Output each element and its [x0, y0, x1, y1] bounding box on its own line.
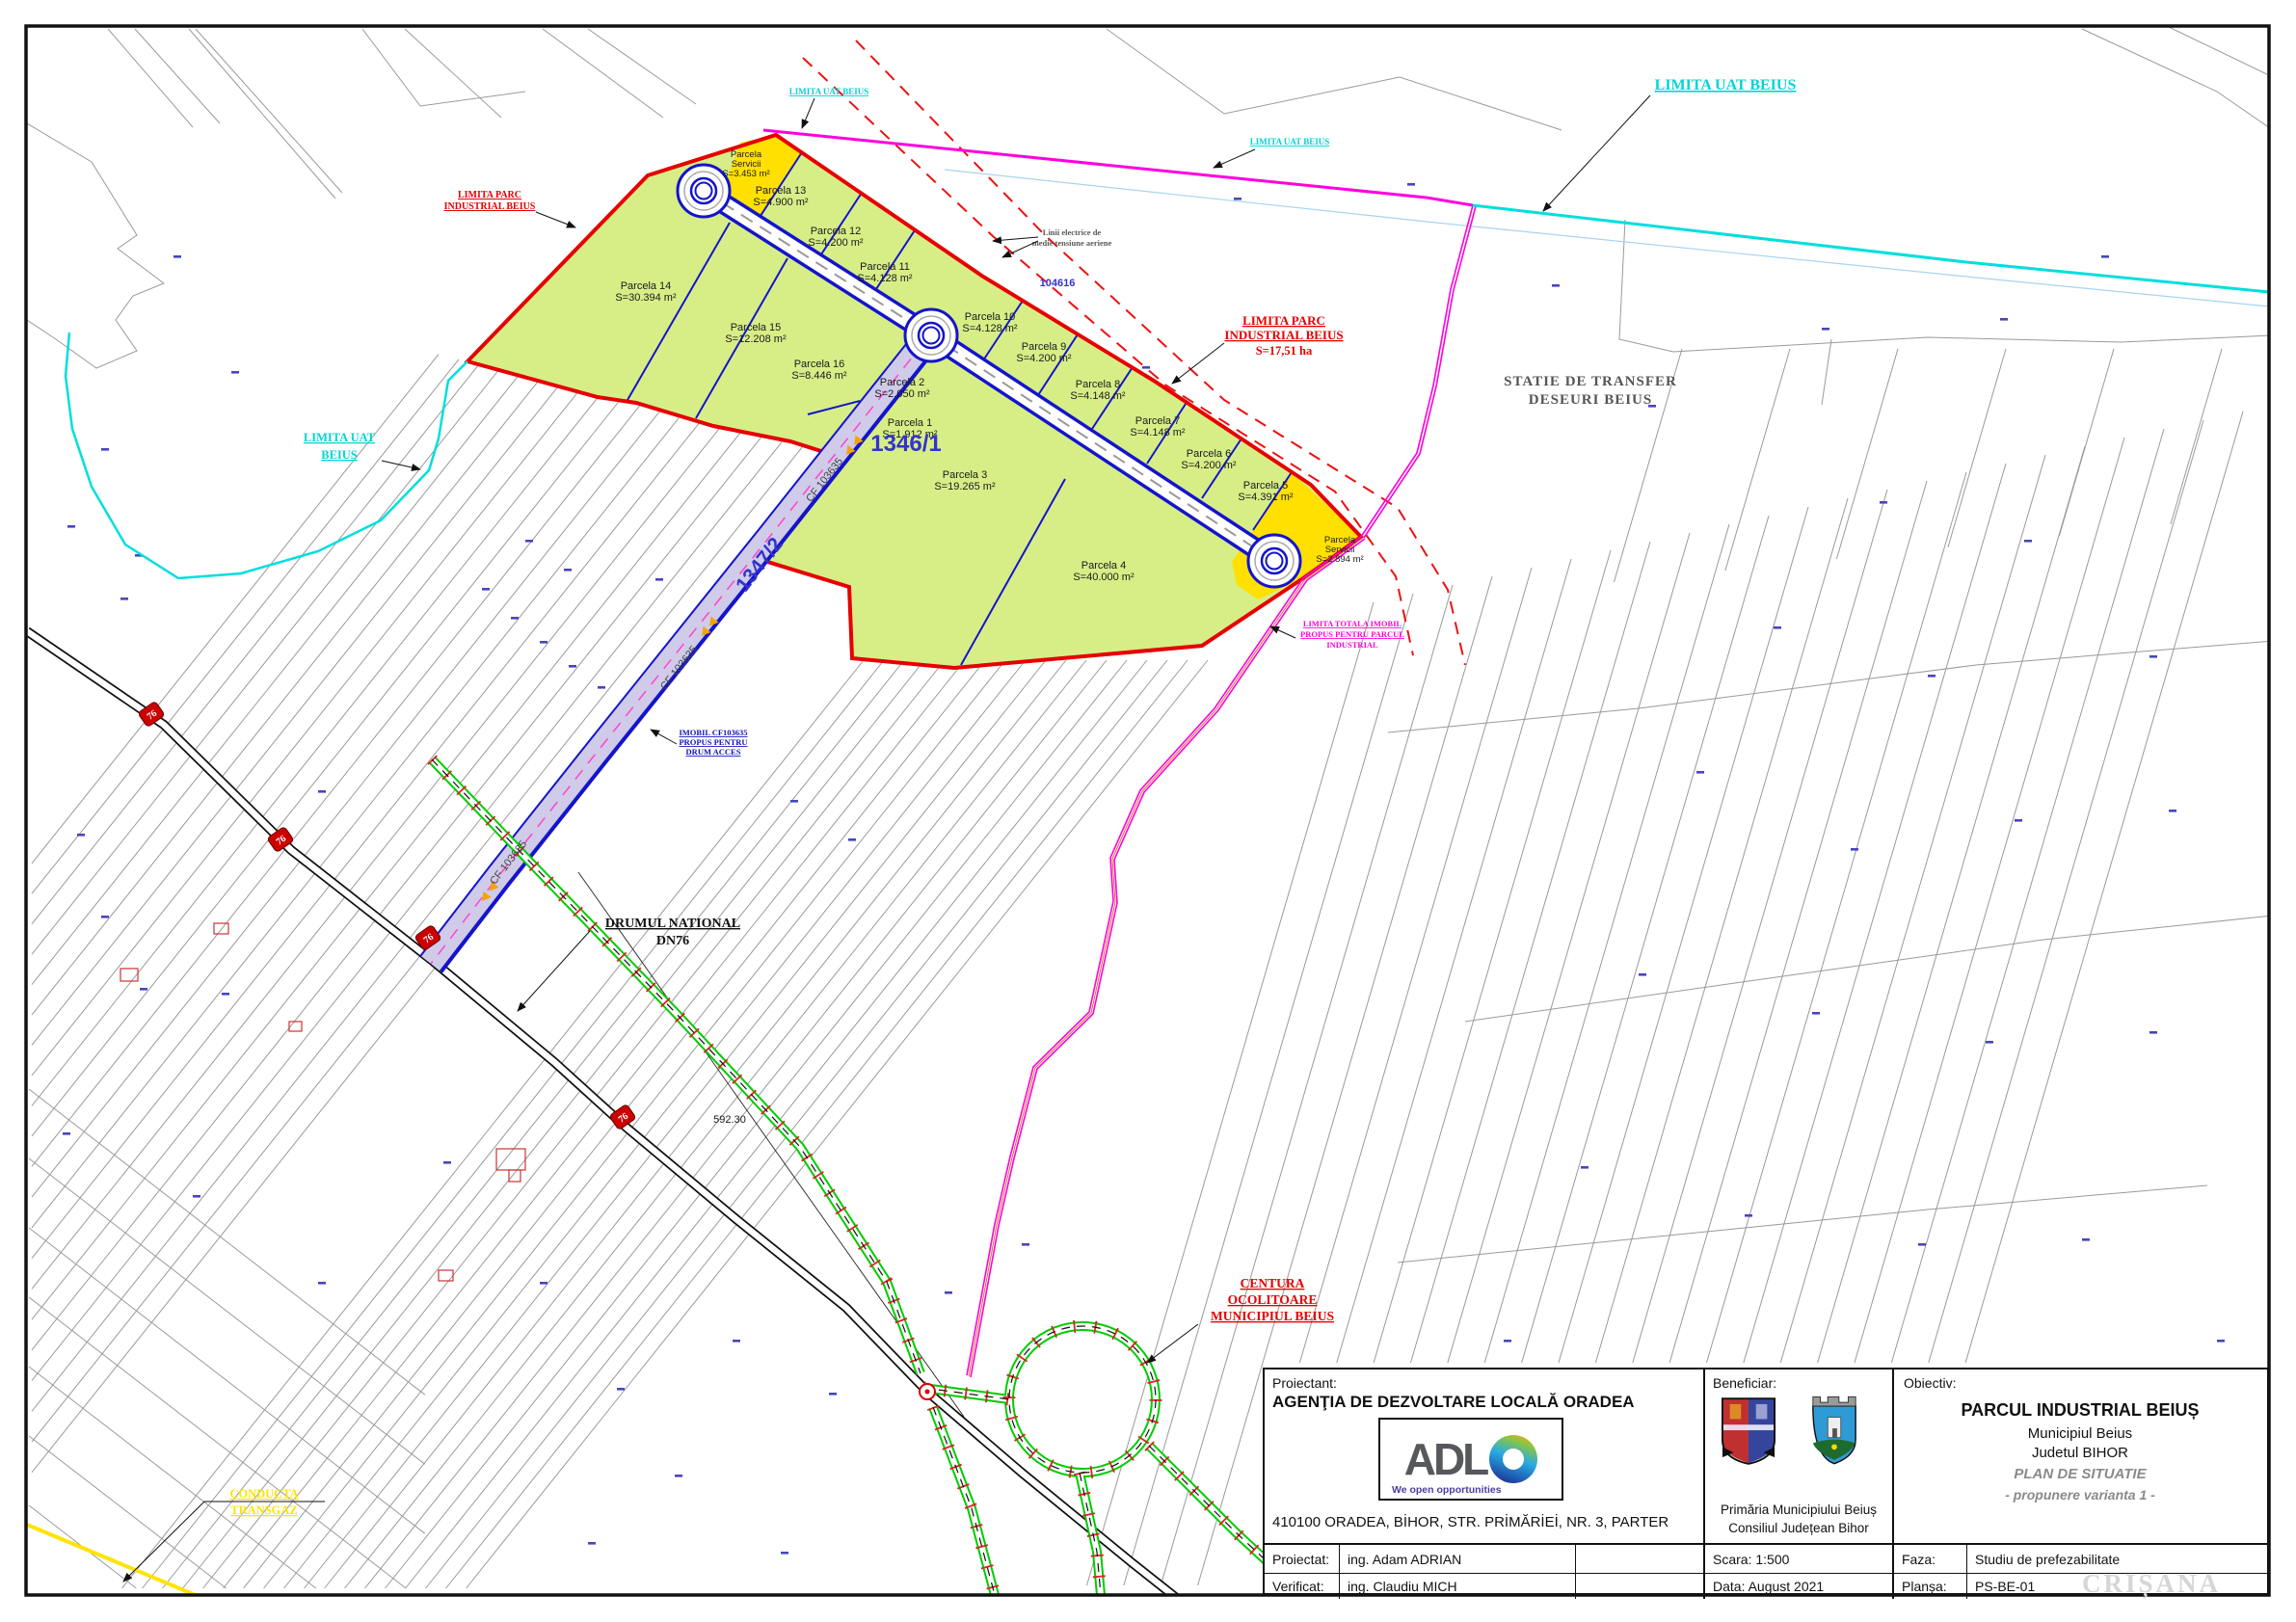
svg-text:S=2.894 m²: S=2.894 m² — [1316, 554, 1363, 565]
parcel-label: Parcela 3 — [943, 469, 987, 481]
data-value: Data: August 2021 — [1703, 1574, 1892, 1599]
svg-text:S=4.200 m²: S=4.200 m² — [808, 237, 864, 249]
imobil-label: IMOBIL CF103635 — [679, 728, 747, 737]
svg-text:S=8.446 m²: S=8.446 m² — [791, 370, 847, 382]
linii-electrice-label: Linii electrice de — [1043, 227, 1102, 237]
svg-text:S=4.900 m²: S=4.900 m² — [753, 197, 809, 208]
svg-text:S=40.000 m²: S=40.000 m² — [1073, 572, 1135, 583]
conducta-label: CONDUCTA — [229, 1487, 298, 1501]
uat-label-small: LIMITA UAT BEIUS — [789, 87, 869, 96]
plan-de-situatie-page: 76 76 76 76 Parcela Servicii S=3.453 m² … — [0, 0, 2296, 1622]
obiectiv-municipiu: Municipiul Beius — [1894, 1425, 2266, 1442]
uat-boundary-magenta — [763, 130, 1473, 205]
statie-label: STATIE DE TRANSFER — [1504, 374, 1677, 389]
dimension-value: 592.30 — [713, 1114, 746, 1126]
limita-totala-label: LIMITA TOTALA IMOBIL — [1303, 619, 1402, 628]
adlo-globe-icon — [1489, 1435, 1537, 1483]
parcel-label: Parcela 14 — [621, 280, 672, 292]
parcel-label: Parcela 6 — [1187, 448, 1231, 460]
parcel-label: Parcela 8 — [1076, 379, 1120, 390]
obiectiv-title: PARCUL INDUSTRIAL BEIUȘ — [1894, 1400, 2266, 1421]
parcel-label: Parcela 5 — [1243, 480, 1288, 492]
parcel-label: Parcela 9 — [1022, 341, 1066, 353]
svg-text:S=12.208 m²: S=12.208 m² — [725, 333, 787, 345]
svg-text:MUNICIPIUL BEIUS: MUNICIPIUL BEIUS — [1211, 1309, 1334, 1323]
svg-text:S=4.391 m²: S=4.391 m² — [1238, 492, 1294, 503]
svg-text:S=30.394 m²: S=30.394 m² — [615, 292, 677, 304]
section-proiectant: Proiectant: AGENŢIA DE DEZVOLTARE LOCALĂ… — [1265, 1369, 1703, 1543]
proiectant-label: Proiectant: — [1272, 1375, 1337, 1391]
beius-coat-of-arms — [1809, 1395, 1859, 1466]
beneficiar-line1: Primăria Municipiului Beiuș — [1705, 1502, 1892, 1517]
centura-label: CENTURA — [1241, 1276, 1305, 1290]
uat-label-small: LIMITA UAT BEIUS — [1250, 137, 1330, 146]
scara-value: Scara: 1:500 — [1703, 1545, 1892, 1573]
obiectiv-varianta: - propunere varianta 1 - — [1894, 1487, 2266, 1502]
limita-parc-left-label: LIMITA PARC — [458, 190, 521, 200]
uat-boundary-cyan-west — [66, 332, 467, 578]
cadastral-id-1346: 1346/1 — [870, 431, 941, 457]
bypass-road — [432, 759, 1303, 1595]
svg-text:S=19.265 m²: S=19.265 m² — [934, 481, 996, 492]
parcel-label: Parcela 12 — [811, 226, 862, 237]
svg-text:BEIUS: BEIUS — [321, 448, 358, 462]
section-obiectiv: Obiectiv: PARCUL INDUSTRIAL BEIUȘ Munici… — [1892, 1369, 2266, 1543]
proiectat-name: ing. Adam ADRIAN — [1339, 1545, 1575, 1573]
faza-label: Faza: — [1892, 1545, 1966, 1573]
adlo-tagline: We open opportunities — [1392, 1484, 1502, 1496]
verificat-name: ing. Claudiu MICH — [1339, 1574, 1575, 1599]
verificat-label: Verificat: — [1265, 1574, 1339, 1599]
beneficiar-label: Beneficiar: — [1713, 1375, 1776, 1391]
svg-text:S=4.148 m²: S=4.148 m² — [1130, 427, 1186, 439]
title-block: Proiectant: AGENŢIA DE DEZVOLTARE LOCALĂ… — [1263, 1368, 2269, 1595]
adlo-logo: ADL We open opportunities — [1378, 1418, 1563, 1501]
svg-text:DESEURI BEIUS: DESEURI BEIUS — [1529, 392, 1652, 408]
beneficiar-line2: Consiliul Județean Bihor — [1705, 1521, 1892, 1535]
proiectant-address: 410100 ORADEA, BİHOR, STR. PRİMĂRİEİ, NR… — [1272, 1514, 1669, 1530]
svg-text:DN76: DN76 — [656, 934, 689, 948]
svg-text:DRUM ACCES: DRUM ACCES — [686, 747, 741, 757]
roundabout-south — [1248, 535, 1300, 587]
uat-parallel-line — [945, 170, 2269, 306]
svg-text:S=4.200 m²: S=4.200 m² — [1016, 353, 1072, 364]
watermark: CRIȘANA — [2082, 1569, 2221, 1599]
proiectant-name: AGENŢIA DE DEZVOLTARE LOCALĂ ORADEA — [1272, 1393, 1635, 1412]
svg-text:INDUSTRIAL BEIUS: INDUSTRIAL BEIUS — [1224, 328, 1343, 342]
uat-label-large: LIMITA UAT BEIUS — [1655, 77, 1797, 93]
plansa-label: Planșa: — [1892, 1574, 1966, 1599]
parcel-label: Parcela 13 — [756, 185, 807, 197]
parcel-label: Parcela 7 — [1135, 415, 1180, 427]
section-beneficiar: Beneficiar: Primăria Municipiului Beiuș … — [1703, 1369, 1892, 1543]
parcel-label: Parcela 2 — [880, 377, 924, 388]
svg-text:INDUSTRIAL: INDUSTRIAL — [1326, 640, 1378, 650]
svg-text:medie tensiune aeriene: medie tensiune aeriene — [1032, 238, 1112, 248]
svg-text:S=4.128 m²: S=4.128 m² — [857, 273, 913, 284]
parcel-label: Parcela 16 — [794, 359, 845, 370]
svg-text:OCOLITOARE: OCOLITOARE — [1228, 1292, 1318, 1307]
obiectiv-plan: PLAN DE SITUATIE — [1894, 1466, 2266, 1482]
uat-label-west: LIMITA UAT — [304, 431, 376, 444]
svg-text:S=3.453 m²: S=3.453 m² — [722, 169, 769, 179]
parcel-label: Parcela 1 — [888, 417, 932, 429]
parcel-label: Parcela 4 — [1081, 560, 1126, 572]
transgaz-pipeline — [27, 1525, 198, 1596]
parcel-label: Parcela 10 — [965, 311, 1016, 323]
svg-text:INDUSTRIAL BEIUS: INDUSTRIAL BEIUS — [444, 201, 536, 212]
svg-text:S=2.050 m²: S=2.050 m² — [874, 388, 930, 400]
svg-text:S=4.128 m²: S=4.128 m² — [962, 323, 1018, 334]
obiectiv-judet: Judetul BIHOR — [1894, 1445, 2266, 1461]
svg-text:S=4.148 m²: S=4.148 m² — [1070, 390, 1126, 402]
adlo-logo-text: ADL — [1404, 1437, 1487, 1481]
svg-text:S=4.200 m²: S=4.200 m² — [1181, 460, 1237, 471]
svg-text:PROPUS PENTRU PARCUL: PROPUS PENTRU PARCUL — [1300, 629, 1404, 639]
uat-boundary-cyan-east — [1473, 205, 2269, 292]
parcel-label: Parcela 15 — [731, 322, 782, 333]
svg-text:TRANSGAZ: TRANSGAZ — [230, 1503, 297, 1517]
dn76-label: DRUMUL NATIONAL — [605, 917, 740, 931]
cadastral-id-104616: 104616 — [1040, 278, 1076, 289]
obiectiv-label: Obiectiv: — [1904, 1375, 1956, 1391]
roundabout-middle — [905, 309, 957, 361]
parcel-label: Parcela 11 — [860, 261, 910, 273]
svg-text:S=17,51 ha: S=17,51 ha — [1256, 344, 1313, 358]
proiectat-label: Proiectat: — [1265, 1545, 1339, 1573]
svg-text:PROPUS PENTRU: PROPUS PENTRU — [679, 737, 747, 747]
bihor-coat-of-arms — [1721, 1396, 1776, 1466]
limita-parc-right-label: LIMITA PARC — [1242, 313, 1325, 328]
